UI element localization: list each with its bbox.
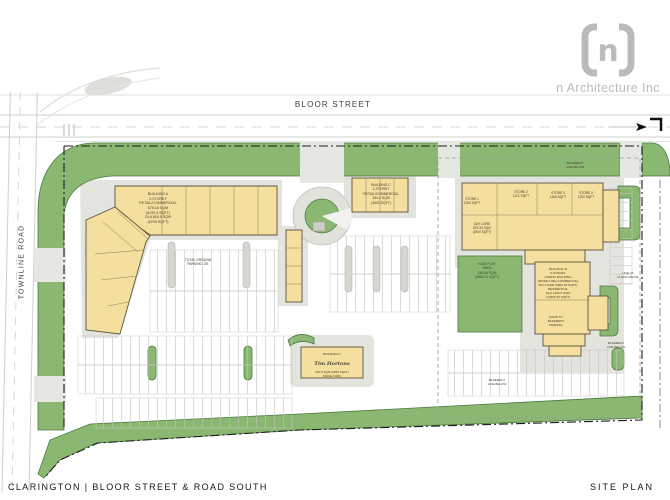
ramp-note: RAMP TO BASEMENT PARKING — [548, 316, 565, 328]
store-1-label: STORE 1 1200 SQFT — [464, 197, 480, 205]
existing-intersection-marks — [36, 68, 160, 136]
site-plan-screenshot: BLOOR STREET TOWNLINE ROAD BUILDING A 2-… — [0, 0, 670, 500]
building-b-label: BUILDING B 6-STOREY CONDO BUILDING (MIXE… — [538, 267, 579, 299]
parking-total-label: TOTAL GROUND PARKING 191 — [185, 258, 212, 267]
key-arrow-icon — [608, 119, 661, 131]
project-title: CLARINGTON | BLOOR STREET & ROAD SOUTH — [8, 482, 268, 492]
basement-note-2: BASEMENT LINE BELOW — [607, 342, 625, 350]
store-3-label: STORE 3 1165 SQFT — [550, 191, 566, 199]
floor-above-note: LINE OF FLOOR ABOVE — [617, 272, 638, 280]
bloor-street-label: BLOOR STREET — [295, 100, 371, 109]
firm-logo: n n Architecture Inc — [552, 22, 664, 95]
logo-letter: n — [597, 34, 618, 69]
building-c-label: BUILDING C 1-STOREY RETAIL/COMMERCIAL 33… — [363, 183, 399, 205]
n-bracket-icon: n — [580, 22, 636, 78]
building-d-area: 265.9 SQM (2863 SQFT) DRIVE-THRU — [314, 371, 349, 379]
sheet-title: SITE PLAN — [590, 482, 654, 492]
store-2-label: STORE 2 1121 SQFT — [513, 190, 529, 198]
building-a-label: BUILDING A 2-STOREY RETAIL/COMMERCIAL 57… — [139, 192, 177, 225]
building-d-label: BUILDING D Tim Hortons 265.9 SQM (2863 S… — [314, 349, 349, 383]
firm-name: n Architecture Inc — [552, 81, 664, 95]
store-4-label: STORE 4 1200 SQFT — [578, 191, 594, 199]
day-care-label: DAY CARE 876.33 SQM (2500 SQFT) — [473, 222, 492, 234]
basement-note-3: BASEMENT LINE BELOW — [566, 162, 584, 170]
building-d-brand: Tim Hortons — [314, 361, 349, 368]
building-d-title: BUILDING D — [314, 353, 349, 357]
kids-play-label: KIDS PLAY AREA 246.66 SQM (2656.01 SQFT) — [475, 262, 500, 280]
townline-road-label: TOWNLINE ROAD — [19, 225, 26, 300]
basement-note-1: BASEMENT LINE BELOW — [488, 379, 506, 387]
